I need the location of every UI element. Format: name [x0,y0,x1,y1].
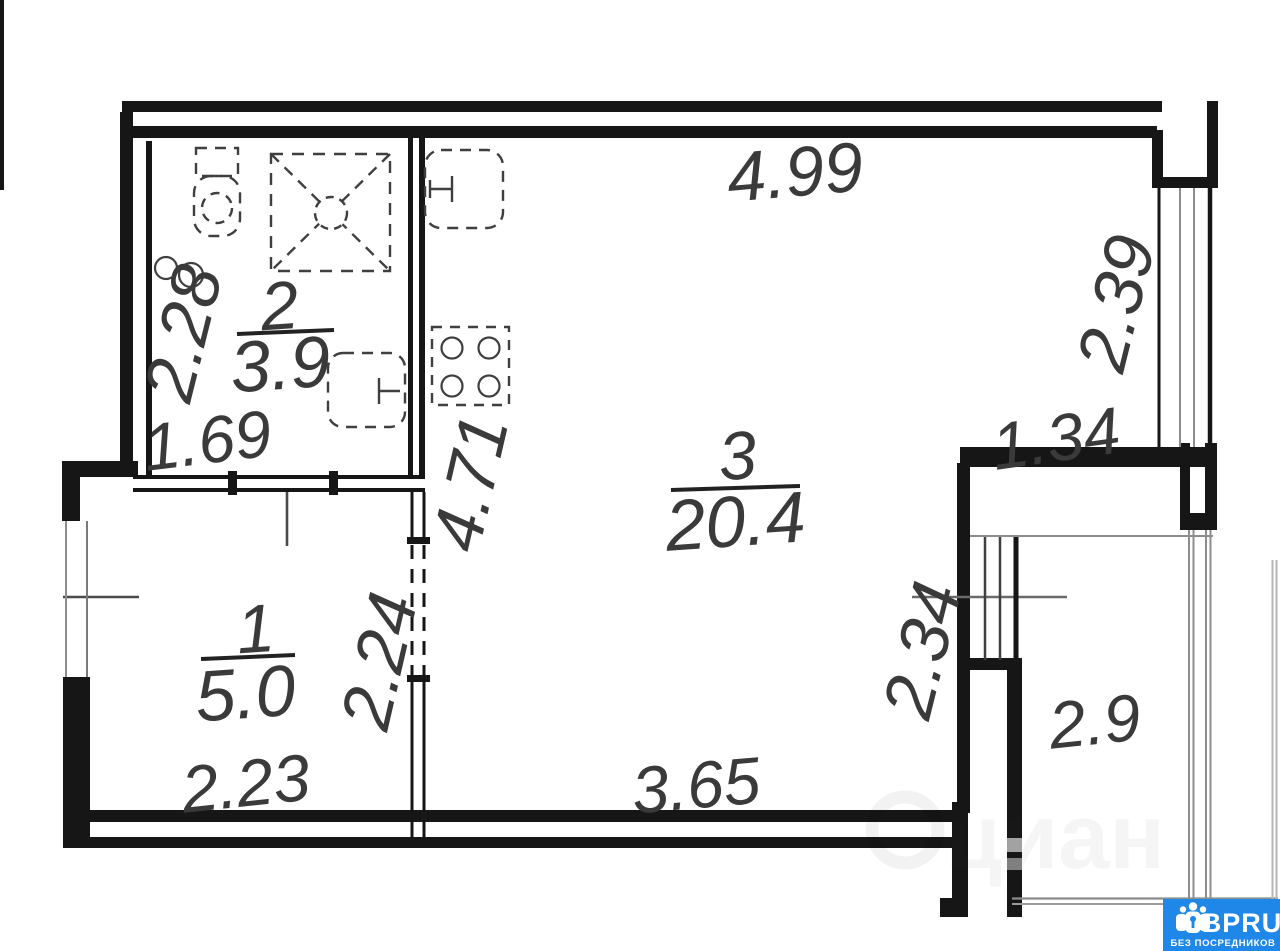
wall-topright-outer-vertical [1207,101,1218,188]
wall-bottom-right-foot [940,898,968,917]
stove-burner-3 [442,376,463,397]
dim-hall-doorway: 2.24 [325,586,432,737]
dim-right-pier: 1.34 [987,393,1125,484]
wall-kitchen-divider-a [408,133,413,479]
room2-area: 3.9 [228,322,333,409]
wall-top-outer [122,101,1162,112]
dim-bath-width: 1.69 [139,396,276,485]
toilet-tank [196,148,238,176]
toilet-seat-circle [202,193,232,223]
badge-tagline: БЕЗ ПОСРЕДНИКОВ [1170,938,1275,949]
room3-area: 20.4 [662,477,808,567]
wall-frame-left-edge [0,0,4,190]
wall-balcony-connector [957,658,1022,670]
balcony-area: 2.9 [1044,680,1144,763]
shower-drain [315,197,347,229]
kitchen-fixtures [425,150,509,405]
wall-bottom-outer [85,837,954,848]
brand-badge[interactable]: BPRU БЕЗ ПОСРЕДНИКОВ [1163,899,1280,951]
floorplan-image: 2 3.9 3 20.4 1 5.0 2.9 4.99 2.39 1.34 2.… [0,0,1280,951]
dim-bath-height: 2.28 [128,257,237,409]
dim-top-width: 4.99 [724,127,867,217]
wall-left-upper [120,112,133,463]
stove-burner-1 [442,338,463,359]
cian-logo-circle [872,797,938,863]
wall-right-column-bottom [1180,513,1217,530]
wall-left-lower [63,677,90,848]
wall-left-jog-vertical [62,461,80,521]
dim-hall-width: 2.23 [177,740,314,827]
stove-burner-4 [479,376,500,397]
room1-area: 5.0 [193,651,298,738]
cian-overlay-gap-2 [1006,858,1024,870]
stove-burner-2 [479,338,500,359]
wall-top-inner [133,126,1157,138]
dim-kitchen-height: 4.71 [417,408,524,558]
jamb-bath-door-right [329,471,338,495]
dim-right-window: 2.39 [1061,227,1170,379]
wall-bath-bottom-b [133,488,425,492]
dim-living-width: 3.65 [629,743,764,828]
badge-brand-name: BPRU [1202,908,1280,938]
wall-kitchen-divider-b [419,133,425,479]
cian-overlay-gap-1 [1006,838,1024,852]
cian-logo-text: циан [945,786,1165,888]
toilet-bowl [194,176,240,236]
